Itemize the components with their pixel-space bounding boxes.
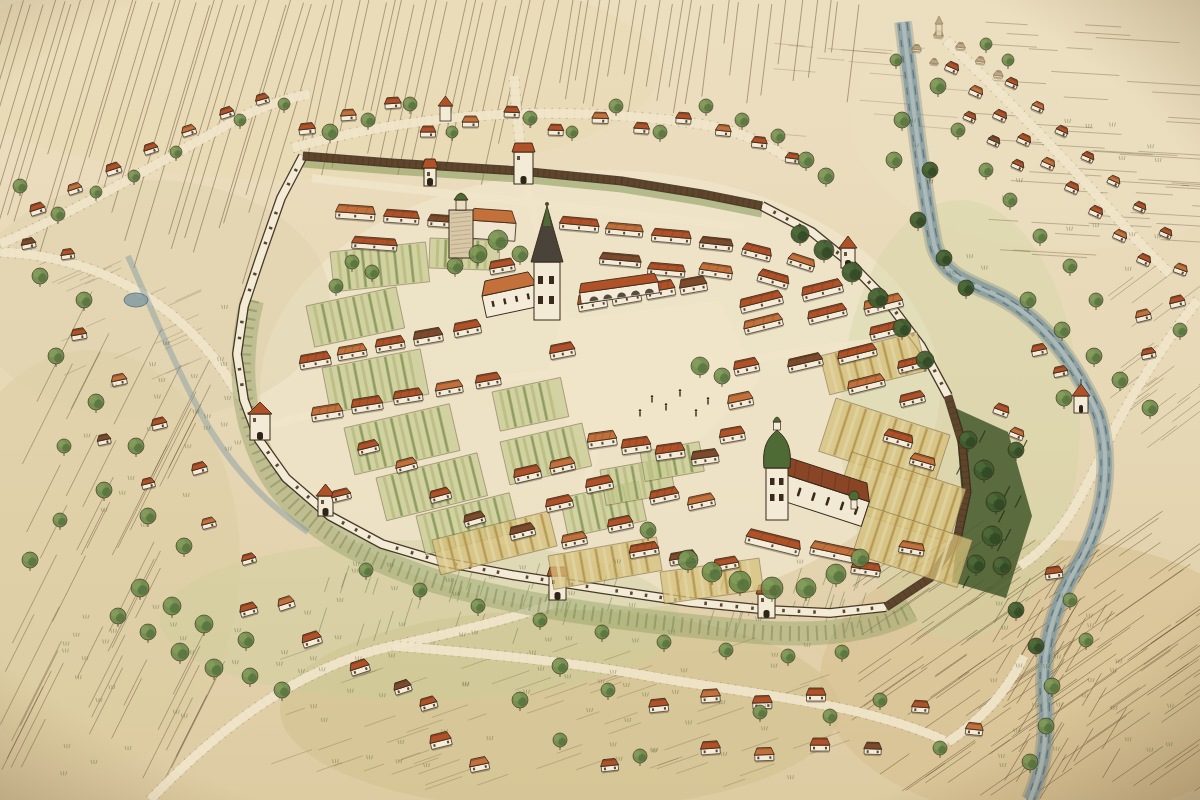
town-panorama-canvas (0, 0, 1200, 800)
photo-vignette (0, 0, 1200, 800)
town-panorama (0, 0, 1200, 800)
